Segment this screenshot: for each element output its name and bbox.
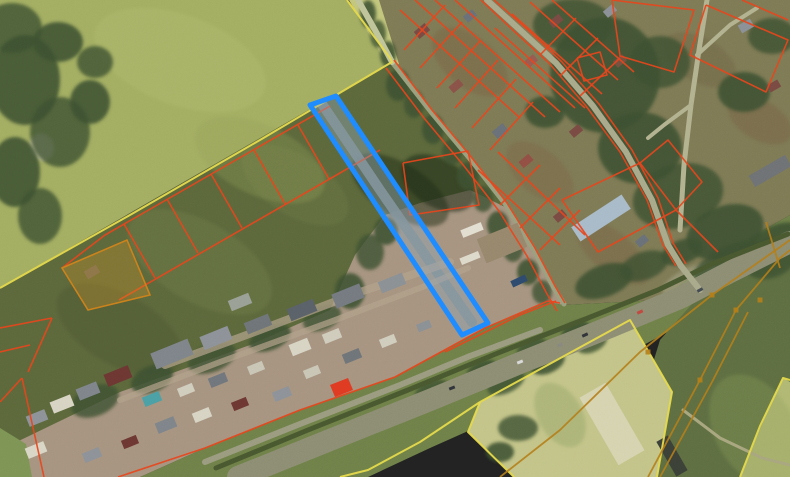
utility-node	[758, 298, 763, 303]
utility-node	[698, 378, 703, 383]
map-viewport	[0, 0, 790, 477]
utility-node	[646, 350, 651, 355]
utility-node	[734, 308, 739, 313]
map-canvas[interactable]	[0, 0, 790, 477]
utility-node	[710, 293, 715, 298]
